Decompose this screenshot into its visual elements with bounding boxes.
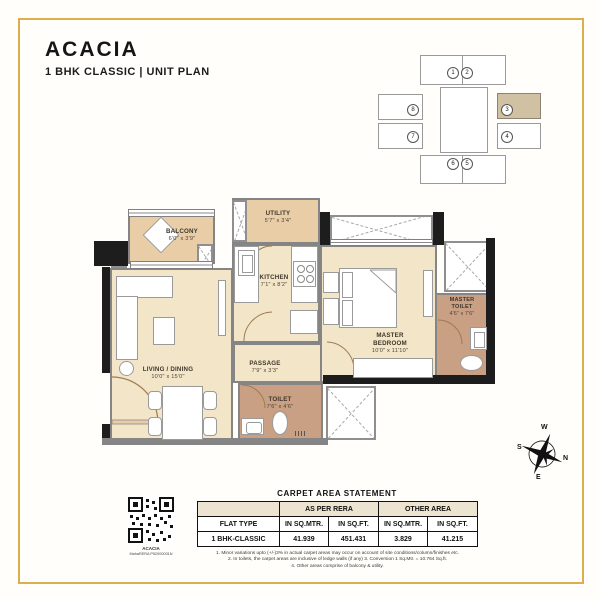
room-dims: 7'1" x 8'2" bbox=[234, 282, 314, 289]
room-name: UTILITY bbox=[266, 210, 291, 217]
compass-north: N bbox=[563, 455, 568, 462]
bed bbox=[339, 268, 397, 328]
key-plan-unit-8: 8 bbox=[407, 104, 419, 116]
washbasin bbox=[470, 327, 487, 350]
wall-segment bbox=[102, 267, 110, 373]
shower-icon bbox=[295, 431, 305, 436]
toilet-wc bbox=[272, 411, 288, 435]
compass-south: S bbox=[517, 444, 522, 451]
tv-unit bbox=[218, 280, 226, 336]
kitchen-sink bbox=[238, 250, 255, 276]
duct-top-right bbox=[444, 241, 491, 292]
key-plan-unit-1: 1 bbox=[447, 67, 459, 79]
table-data-row: 1 BHK-CLASSIC 41.939 451.431 3.829 41.21… bbox=[198, 532, 478, 547]
balcony-window bbox=[128, 209, 215, 217]
room-dims: 10'0" x 11'10" bbox=[362, 348, 418, 355]
table-header-row: FLAT TYPE IN SQ.MTR. IN SQ.FT. IN SQ.MTR… bbox=[198, 517, 478, 532]
key-plan-unit-7: 7 bbox=[407, 131, 419, 143]
cell-flat-type: 1 BHK-CLASSIC bbox=[198, 532, 280, 547]
room-name: TOILET bbox=[268, 396, 291, 403]
compass-rose: W S N E bbox=[514, 424, 576, 486]
master-toilet-door-arc bbox=[437, 319, 463, 345]
table-header-flat-type: FLAT TYPE bbox=[198, 517, 280, 532]
room-dims: 5'7" x 3'4" bbox=[238, 218, 318, 225]
table-group-other: OTHER AREA bbox=[379, 502, 478, 517]
duct-bottom bbox=[326, 386, 376, 440]
key-plan-unit-2: 2 bbox=[461, 67, 473, 79]
floor-plan: BALCONY6'0" x 3'9" LIVING / DINING10'0" … bbox=[90, 190, 510, 456]
room-name: LIVING / DINING bbox=[143, 366, 193, 373]
label-utility: UTILITY5'7" x 3'4" bbox=[238, 210, 318, 225]
coffee-table bbox=[153, 317, 175, 345]
label-kitchen: KITCHEN7'1" x 8'2" bbox=[234, 274, 314, 289]
dining-chair bbox=[148, 417, 162, 436]
table-group-header-row: AS PER RERA OTHER AREA bbox=[198, 502, 478, 517]
room-name: BALCONY bbox=[166, 228, 198, 235]
room-dims: 4'6" x 7'6" bbox=[440, 311, 484, 318]
wall-segment bbox=[433, 212, 444, 245]
bedroom-bench bbox=[353, 358, 433, 378]
table-header-sqft-rera: IN SQ.FT. bbox=[329, 517, 379, 532]
bedside-table bbox=[323, 298, 339, 325]
wall-segment bbox=[94, 241, 128, 266]
label-master-bedroom: MASTER BEDROOM10'0" x 11'10" bbox=[362, 332, 418, 354]
label-balcony: BALCONY6'0" x 3'9" bbox=[142, 228, 222, 243]
key-plan-unit-6: 6 bbox=[447, 158, 459, 170]
room-dims: 10'0" x 15'0" bbox=[128, 374, 208, 381]
bedroom-door-arc bbox=[326, 341, 355, 371]
dining-chair bbox=[203, 417, 217, 436]
room-dims: 6'0" x 3'9" bbox=[142, 236, 222, 243]
carpet-table-title: CARPET AREA STATEMENT bbox=[197, 489, 477, 498]
dining-table bbox=[162, 386, 203, 440]
room-name: MASTER TOILET bbox=[450, 297, 475, 310]
bedside-table bbox=[323, 272, 339, 293]
bedroom-window bbox=[330, 239, 433, 246]
compass-west: W bbox=[541, 424, 548, 431]
room-name: MASTER BEDROOM bbox=[373, 332, 407, 347]
dining-chair bbox=[148, 391, 162, 410]
key-plan: 1 2 8 3 7 4 6 5 bbox=[373, 42, 563, 192]
room-name: KITCHEN bbox=[260, 274, 289, 281]
wardrobe bbox=[423, 270, 433, 317]
label-master-toilet: MASTER TOILET4'6" x 7'6" bbox=[440, 297, 484, 317]
table-header-sqft-other: IN SQ.FT. bbox=[428, 517, 478, 532]
washbasin bbox=[241, 418, 264, 435]
kitchen-door-arc bbox=[243, 311, 273, 343]
key-plan-unit-3: 3 bbox=[501, 104, 513, 116]
sofa bbox=[116, 276, 173, 298]
toilet-wc bbox=[460, 355, 483, 371]
key-plan-unit-4: 4 bbox=[501, 131, 513, 143]
label-toilet: TOILET7'6" x 4'6" bbox=[240, 396, 320, 411]
table-header-sqmtr-other: IN SQ.MTR. bbox=[379, 517, 428, 532]
balcony-slider-door bbox=[130, 261, 213, 269]
unit-plan-page: ACACIA 1 BHK CLASSIC | UNIT PLAN 1 2 8 3… bbox=[0, 0, 600, 600]
key-plan-core bbox=[440, 87, 488, 153]
cell-rera-sqft: 451.431 bbox=[329, 532, 379, 547]
label-living: LIVING / DINING10'0" x 15'0" bbox=[128, 366, 208, 381]
table-group-rera: AS PER RERA bbox=[280, 502, 379, 517]
wall-segment bbox=[320, 212, 330, 245]
cell-other-sqmtr: 3.829 bbox=[379, 532, 428, 547]
wall-segment bbox=[486, 238, 495, 380]
cell-other-sqft: 41.215 bbox=[428, 532, 478, 547]
footnote-line: 4. Other areas comprise of balcony & uti… bbox=[150, 564, 525, 570]
room-dims: 7'6" x 4'6" bbox=[240, 404, 320, 411]
label-passage: PASSAGE7'9" x 3'3" bbox=[225, 360, 305, 375]
sofa bbox=[116, 296, 138, 360]
key-plan-unit-5: 5 bbox=[461, 158, 473, 170]
wall-segment bbox=[102, 438, 328, 445]
dining-chair bbox=[203, 391, 217, 410]
page-subtitle: 1 BHK CLASSIC | UNIT PLAN bbox=[45, 66, 210, 78]
qr-code bbox=[128, 497, 174, 543]
table-header-sqmtr-rera: IN SQ.MTR. bbox=[280, 517, 329, 532]
room-name: PASSAGE bbox=[249, 360, 280, 367]
table-cell-blank bbox=[198, 502, 280, 517]
cell-rera-sqmtr: 41.939 bbox=[280, 532, 329, 547]
page-title: ACACIA bbox=[45, 38, 139, 62]
footnotes: 1. Minor variations upto (+/-)3% in actu… bbox=[150, 551, 525, 570]
compass-east: E bbox=[536, 474, 541, 481]
kitchen-cabinet bbox=[290, 310, 318, 334]
carpet-area-table: AS PER RERA OTHER AREA FLAT TYPE IN SQ.M… bbox=[197, 501, 478, 547]
room-dims: 7'9" x 3'3" bbox=[225, 368, 305, 375]
